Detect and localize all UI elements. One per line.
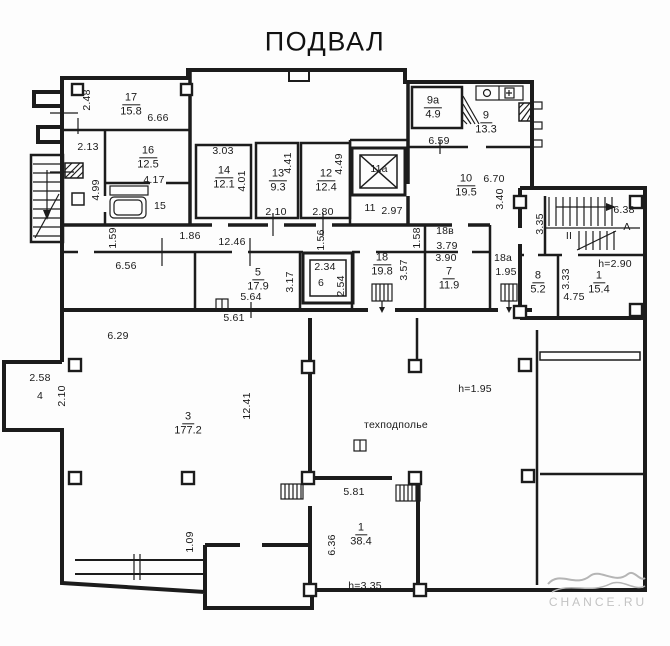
room-label-18: 1819.8 [371, 251, 392, 278]
dim-label: 6.56 [115, 260, 136, 272]
dim-label: 6.59 [428, 135, 449, 147]
dim-label: 1.09 [184, 531, 196, 552]
dim-label: h=1.95 [458, 383, 492, 395]
dim-label: 1.59 [107, 227, 119, 248]
floor-plan: ПОДВАЛ 1715.81612.51412.1139.31212.49а4.… [0, 0, 670, 646]
room-label-7: 711.9 [439, 265, 460, 292]
dim-label: 1.86 [179, 230, 200, 242]
room-label-1: 138.4 [350, 521, 371, 548]
dim-label: h=2.90 [598, 258, 632, 270]
dim-label: 2.58 [29, 372, 50, 384]
dim-label: 1.58 [411, 227, 423, 248]
page-title: ПОДВАЛ [265, 27, 386, 58]
dim-label: 2.48 [81, 89, 93, 110]
dim-label: 5.64 [240, 291, 261, 303]
dim-label: 4.75 [563, 291, 584, 303]
dim-label: h=3.35 [348, 580, 382, 592]
dim-label: II [566, 230, 572, 242]
watermark: CHANCE.RU [549, 595, 647, 609]
dim-label: 3.40 [494, 188, 506, 209]
dim-label: 6.66 [147, 112, 168, 124]
room-label-5: 517.9 [247, 266, 268, 293]
dim-label: 4.49 [333, 153, 345, 174]
room-label-3: 3177.2 [174, 410, 202, 437]
dim-label: 6.70 [483, 173, 504, 185]
dim-label: 12.46 [218, 236, 245, 248]
room-label-10: 1019.5 [455, 172, 476, 199]
room-label-9: 913.3 [475, 109, 496, 136]
dim-label: 1.95 [495, 266, 516, 278]
dim-label: 4.17 [143, 174, 164, 186]
dim-label: 18в [436, 225, 454, 237]
room-label-9а: 9а4.9 [424, 94, 442, 121]
dim-label: 5.81 [343, 486, 364, 498]
dim-label: 2.80 [312, 206, 333, 218]
dim-label: 5.61 [223, 312, 244, 324]
outer-walls [4, 70, 645, 608]
room-label-17: 1715.8 [120, 91, 141, 118]
dim-label: 3.35 [534, 213, 546, 234]
dim-label: 18а [494, 252, 512, 264]
room-label-14: 1412.1 [213, 164, 234, 191]
dim-label: 4.01 [236, 170, 248, 191]
bathtub-icon [110, 186, 148, 218]
dim-label: 6.36 [326, 534, 338, 555]
dim-label: 4.41 [282, 152, 294, 173]
entrance-stair-icon [31, 155, 84, 242]
dim-label: 4.99 [90, 179, 102, 200]
dim-label: 12.41 [241, 392, 253, 419]
dim-label: 11 [364, 202, 375, 214]
dim-label: 2.97 [381, 205, 402, 217]
dim-label: 11а [370, 163, 387, 175]
dim-label: 2.10 [56, 385, 68, 406]
dim-label: 15 [154, 200, 166, 212]
room-label-16: 1612.5 [137, 144, 158, 171]
dim-label: 2.34 [314, 261, 335, 273]
dim-label: 3.17 [284, 271, 296, 292]
dim-label: 4 [37, 390, 43, 402]
dim-label: 3.90 [435, 252, 456, 264]
dim-label: 3.57 [398, 259, 410, 280]
dim-label: 6.38 [613, 204, 634, 216]
room-label-8: 85.2 [530, 269, 545, 296]
dim-label: техподполье [364, 419, 428, 431]
dim-label: 6 [318, 277, 324, 289]
dim-label: 3.03 [212, 145, 233, 157]
dim-label: А [623, 221, 630, 233]
dim-label: 3.79 [436, 240, 457, 252]
dim-label: 2.13 [77, 141, 98, 153]
dim-label: 2.54 [335, 275, 347, 296]
dim-label: 3.33 [560, 268, 572, 289]
room-label-1: 115.4 [588, 269, 609, 296]
dim-label: 2.10 [265, 206, 286, 218]
dim-label: 6.29 [107, 330, 128, 342]
dim-label: 1.56 [315, 229, 327, 250]
